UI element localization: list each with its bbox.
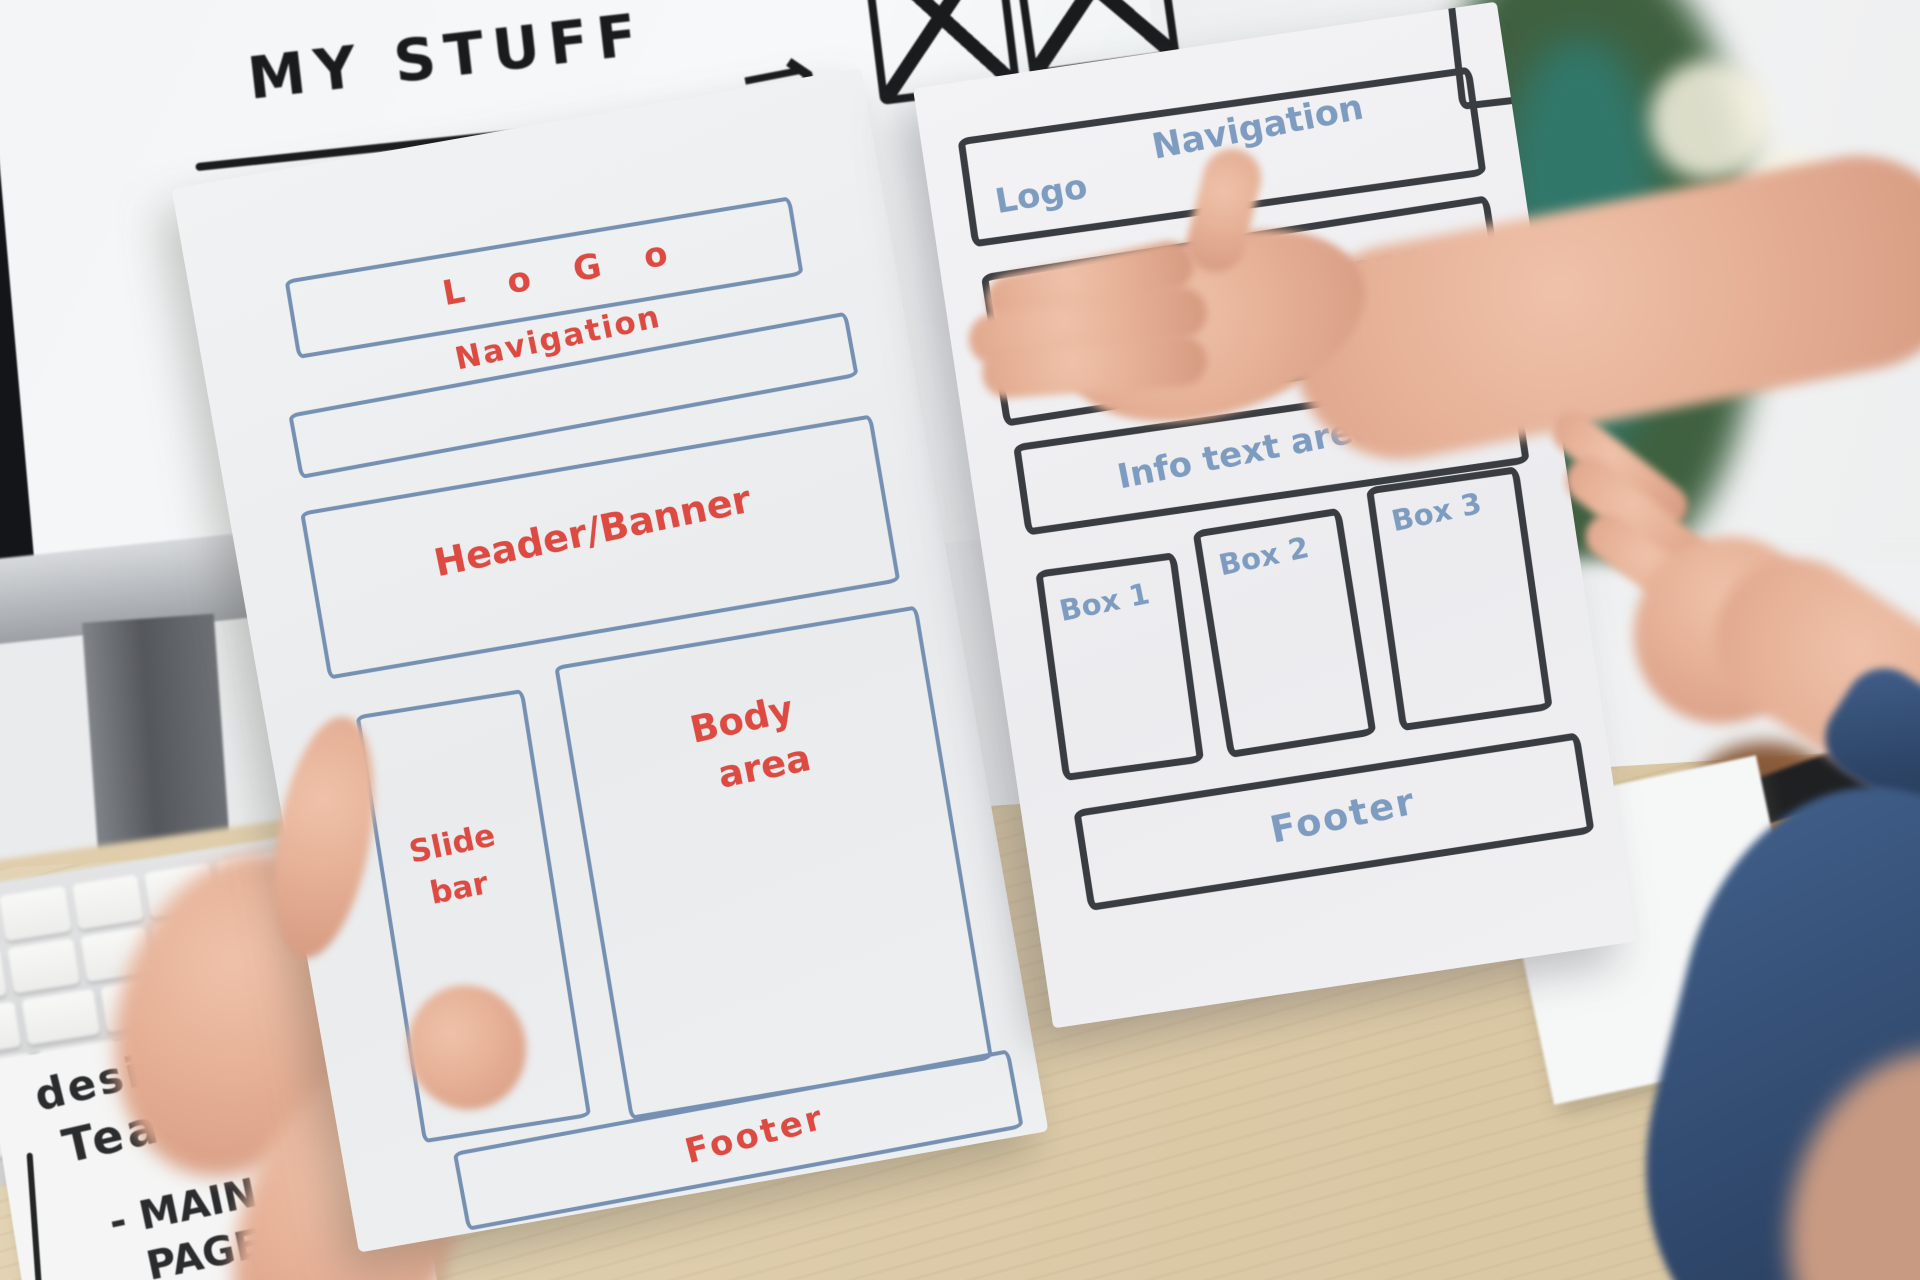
right-box2: Box 2 (1192, 508, 1376, 759)
note-brace-line (27, 1153, 47, 1280)
right-box2-label: Box 2 (1216, 530, 1312, 582)
monitor-sketch-title: MY STUFF (244, 0, 649, 113)
keyboard-key (22, 989, 101, 1046)
right-footer-label: Footer (1266, 780, 1419, 852)
right-box3-label: Box 3 (1388, 486, 1484, 538)
left-body-label-line2: area (714, 736, 814, 797)
keyboard-key (0, 950, 8, 1006)
left-sidebar-label-line2: bar (427, 865, 491, 911)
left-body-box: Body area (554, 605, 993, 1119)
right-box1-label: Box 1 (1056, 576, 1152, 628)
bokeh-highlight (1650, 60, 1770, 180)
left-sidebar-label-line1: Slide (406, 817, 498, 870)
keyboard-key (0, 886, 72, 942)
right-navigation-label: Navigation (1149, 88, 1367, 168)
left-footer-label: Footer (681, 1098, 829, 1172)
left-header-label: Header/Banner (430, 477, 754, 585)
keyboard-key (0, 1001, 22, 1058)
right-box1: Box 1 (1035, 552, 1204, 781)
photo-scene: MY STUFF IMAGES ⇒ command (0, 0, 1920, 1280)
keyboard-key (71, 874, 144, 930)
keyboard-key (7, 938, 80, 994)
right-box3: Box 3 (1366, 466, 1553, 731)
right-logo-label: Logo (992, 167, 1090, 222)
